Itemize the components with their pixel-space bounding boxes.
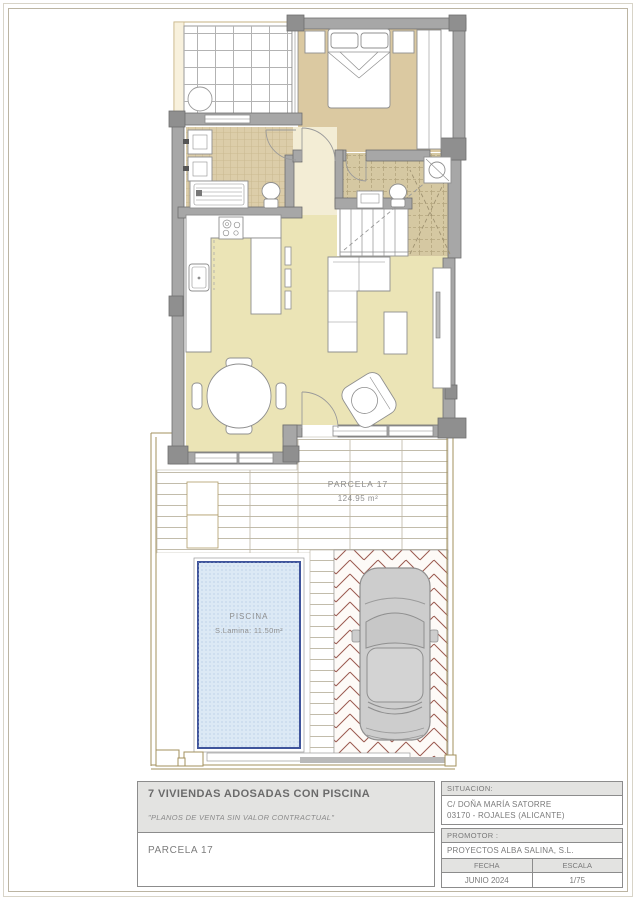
- wall-top: [288, 18, 466, 29]
- project-title: 7 VIVIENDAS ADOSADAS CON PISCINA: [148, 788, 434, 800]
- wall-bed-bottom-b: [366, 150, 430, 161]
- kitchen-island: [251, 238, 281, 314]
- faucet-2: [183, 166, 189, 171]
- window-dining-1: [195, 453, 237, 463]
- toilet-right: [390, 184, 407, 200]
- promotor-label: PROMOTOR :: [442, 829, 622, 843]
- car-mirror-left: [352, 630, 360, 642]
- car: [352, 568, 438, 740]
- window-bath-terrace: [205, 115, 250, 123]
- situacion-address-line1: C/ DOÑA MARÍA SATORRE: [447, 799, 622, 810]
- title-block-right: SITUACION: C/ DOÑA MARÍA SATORRE 03170 -…: [441, 781, 623, 887]
- situacion-address-line2: 03170 - ROJALES (ALICANTE): [447, 810, 622, 821]
- shelf-3: [285, 291, 291, 309]
- window-living-1: [333, 426, 387, 436]
- window-dining-2: [239, 453, 273, 463]
- wall-bath-left-right: [285, 155, 294, 207]
- gate-post-left: [156, 750, 179, 766]
- stove: [219, 217, 243, 239]
- hall-floor: [293, 127, 337, 217]
- plan-sheet: { "plan": { "parcel_label": "PARCELA 17"…: [0, 0, 636, 900]
- car-mirror-right: [430, 630, 438, 642]
- faucet-1: [183, 139, 189, 144]
- escala-value: 1/75: [533, 873, 623, 887]
- gate-post-right: [445, 755, 456, 766]
- floor-plan-drawing: PARCELA 17 124.95 m² PISCINA S.Lamina: 1…: [0, 0, 636, 781]
- title-block-left: 7 VIVIENDAS ADOSADAS CON PISCINA "PLANOS…: [137, 781, 435, 887]
- situacion-label: SITUACION:: [442, 782, 622, 796]
- sheet-name: PARCELA 17: [148, 845, 434, 856]
- pillow-right: [361, 33, 388, 48]
- escala-label: ESCALA: [533, 859, 623, 873]
- toilet-left: [262, 183, 280, 200]
- tv: [436, 292, 440, 338]
- pillow-left: [331, 33, 358, 48]
- coffee-table: [384, 312, 407, 354]
- dining-table: [207, 364, 271, 428]
- promotor-box: PROMOTOR : PROYECTOS ALBA SALINA, S.L. F…: [441, 828, 623, 888]
- nightstand-right: [393, 31, 414, 53]
- bathtub-drain: [196, 190, 202, 196]
- pool-area: PISCINA S.Lamina: 11.50m²: [157, 553, 310, 762]
- car-windshield: [366, 613, 424, 648]
- situacion-box: SITUACION: C/ DOÑA MARÍA SATORRE 03170 -…: [441, 781, 623, 825]
- wall-left: [172, 113, 184, 452]
- front-terrace: [174, 22, 298, 118]
- sidewalk-strip: [300, 757, 448, 763]
- planters: [187, 482, 218, 548]
- shelf-2: [285, 269, 291, 287]
- disclaimer-text: "PLANOS DE VENTA SIN VALOR CONTRACTUAL": [148, 813, 434, 822]
- gate-post-left2: [184, 752, 203, 766]
- fecha-value: JUNIO 2024: [442, 873, 532, 887]
- parcel-area-label: 124.95 m²: [338, 494, 379, 503]
- car-roof: [367, 648, 423, 702]
- chair-w: [192, 383, 202, 409]
- promotor-value: PROYECTOS ALBA SALINA, S.L.: [442, 843, 622, 859]
- title-block-header: 7 VIVIENDAS ADOSADAS CON PISCINA "PLANOS…: [138, 782, 434, 833]
- window-living-2: [389, 426, 433, 436]
- nightstand-left: [305, 31, 325, 53]
- plant-circle: [188, 87, 212, 111]
- walkway: [310, 550, 334, 762]
- chair-e: [276, 383, 286, 409]
- parcel-label: PARCELA 17: [328, 479, 388, 489]
- sheet-name-cell: PARCELA 17: [138, 833, 434, 856]
- pool-label: PISCINA: [229, 612, 268, 621]
- fecha-label: FECHA: [442, 859, 532, 873]
- shelf-1: [285, 247, 291, 265]
- pool-area-label: S.Lamina: 11.50m²: [215, 626, 283, 635]
